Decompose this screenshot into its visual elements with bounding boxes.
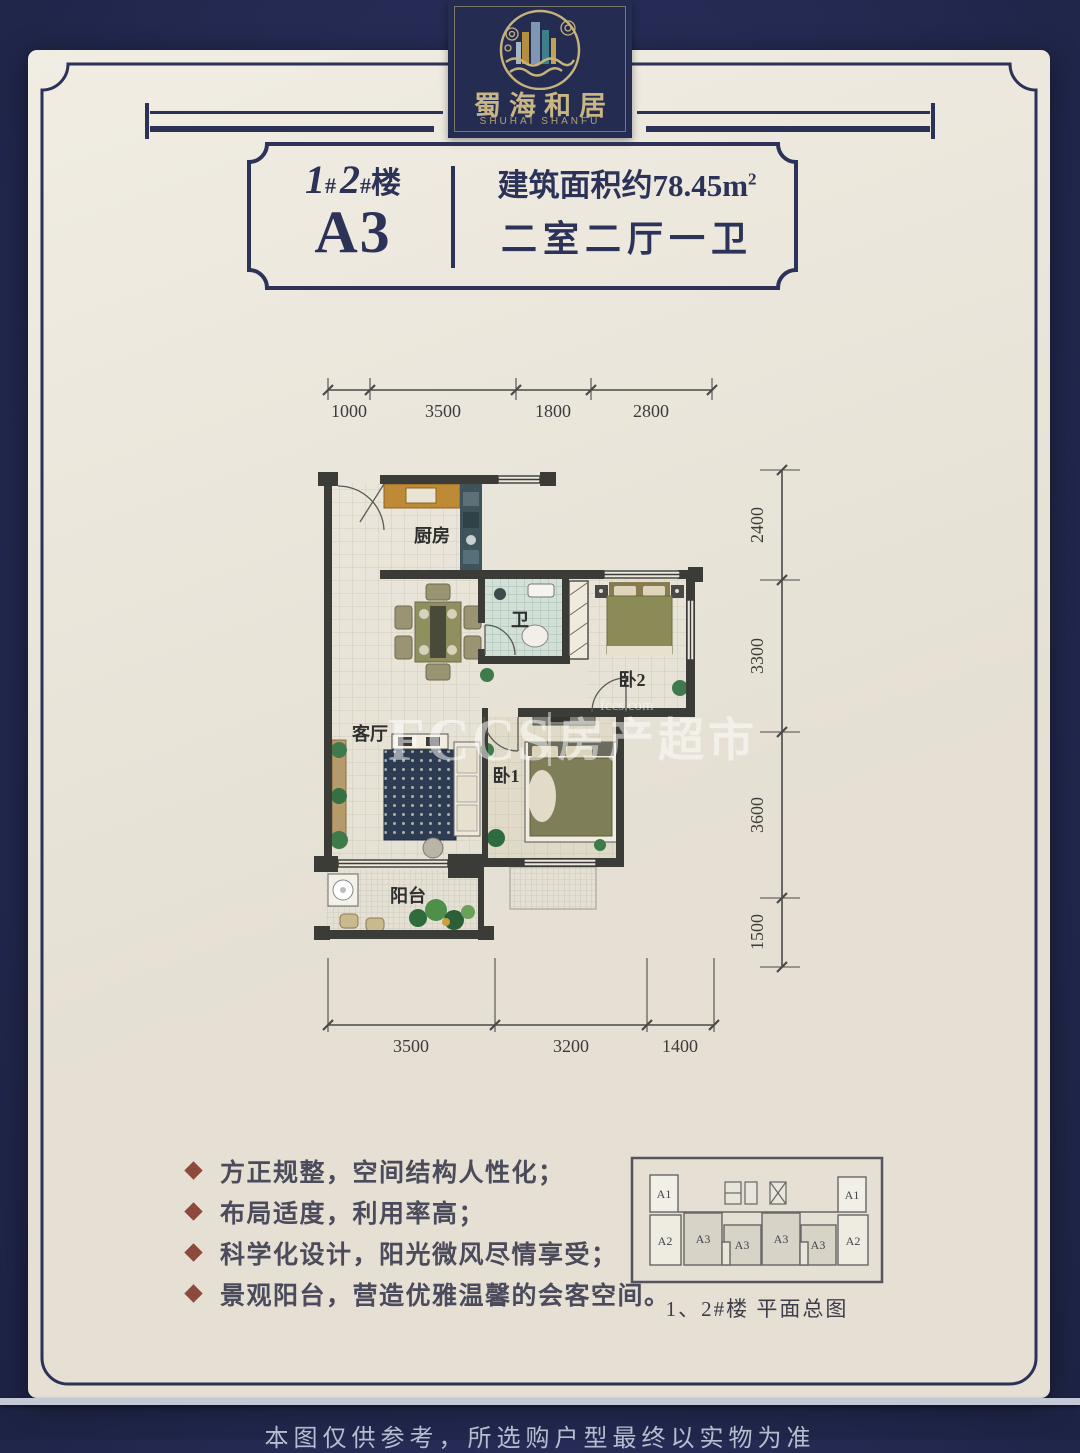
dim-bottom-3200: 3200 (553, 1036, 589, 1056)
dimension-labels-top: 1000 3500 1800 2800 (331, 401, 669, 421)
logo-english-name: SHUHAI SHANFU (448, 116, 632, 127)
area-superscript: 2 (748, 170, 757, 189)
unit-a3-1: A3 (696, 1232, 711, 1246)
floor-plan-poster-photo: { "brand": { "logo_cn": "蜀海和居", "logo_en… (0, 0, 1080, 1440)
area-value: 78.45 (652, 168, 722, 203)
key-plan-core (678, 1182, 838, 1212)
title-divider (451, 166, 455, 268)
unit-a3-4: A3 (811, 1238, 826, 1252)
dim-bottom-3500: 3500 (393, 1036, 429, 1056)
watermark-domain: fccs.com (600, 698, 654, 714)
dim-right-3300: 3300 (747, 638, 767, 674)
building-suffix: 楼 (371, 167, 401, 200)
left-flank-line-thin (150, 111, 443, 114)
right-flank-endcap (931, 103, 935, 139)
feature-text: 景观阳台，营造优雅温馨的会客空间。 (220, 1276, 671, 1312)
dim-top-2800: 2800 (633, 401, 669, 421)
dim-right-1500: 1500 (747, 914, 767, 950)
dim-top-3500: 3500 (425, 401, 461, 421)
diamond-bullet-icon (184, 1243, 202, 1261)
building-num-2: 2 (340, 157, 360, 202)
unit-a2-right: A2 (846, 1234, 861, 1248)
dim-right-3600: 3600 (747, 797, 767, 833)
room-count-label: 二室二厅一卫 (462, 210, 792, 262)
poster-bottom-edge (0, 1398, 1080, 1405)
building-num-1: 1 (305, 157, 325, 202)
unit-a3-2: A3 (735, 1238, 750, 1252)
living-room-label: 客厅 (352, 723, 388, 744)
disclaimer-text: 本图仅供参考，所选购户型最终以实物为准 (0, 1418, 1080, 1453)
feature-text: 科学化设计，阳光微风尽情享受； (220, 1235, 618, 1271)
key-plan-caption: 1、2#楼 平面总图 (666, 1297, 849, 1321)
diamond-bullet-icon (184, 1284, 202, 1302)
bedroom2-label: 卧2 (619, 670, 646, 690)
building-key-plan: A1 A1 A2 A3 A3 A3 A3 A2 1、2#楼 平面总图 (625, 1150, 895, 1330)
diamond-bullet-icon (184, 1202, 202, 1220)
dimension-chain-top (323, 378, 717, 400)
unit-a1-right: A1 (845, 1188, 860, 1202)
diamond-bullet-icon (184, 1161, 202, 1179)
unit-a2-left: A2 (658, 1234, 673, 1248)
logo-box: 蜀海和居 SHUHAI SHANFU (448, 0, 632, 138)
unit-type-label: A3 (253, 198, 453, 267)
key-plan-units (650, 1175, 868, 1265)
balcony-label: 阳台 (390, 885, 426, 906)
area-prefix: 建筑面积约 (497, 168, 652, 203)
building-hash-2: # (360, 173, 371, 198)
dim-bottom-1400: 1400 (662, 1036, 698, 1056)
left-flank-endcap (145, 103, 149, 139)
kitchen-label: 厨房 (414, 525, 450, 546)
right-flank-line-thick (646, 126, 930, 132)
left-flank-line-thick (150, 126, 434, 132)
floor-area-label: 建筑面积约78.45m2 (462, 160, 792, 205)
dim-right-2400: 2400 (747, 507, 767, 543)
building-hash-1: # (325, 173, 336, 198)
right-flank-line-thin (637, 111, 930, 114)
dim-top-1000: 1000 (331, 401, 367, 421)
logo-emblem-icon (448, 0, 632, 90)
dimension-labels-bottom: 3500 3200 1400 (393, 1036, 698, 1056)
watermark-brand: FCCS (388, 707, 553, 773)
building-number-label: 1# 2#楼 (253, 156, 453, 203)
watermark-brand-cn: 房产超市 (558, 715, 758, 766)
bathroom-label: 卫 (511, 610, 529, 630)
feature-text: 方正规整，空间结构人性化； (220, 1153, 565, 1189)
area-unit: m (722, 168, 748, 203)
feature-text: 布局适度，利用率高； (220, 1194, 485, 1230)
floor-plan: 1000 3500 1800 2800 2400 3300 3600 1500 (300, 370, 820, 1080)
unit-a3-3: A3 (774, 1232, 789, 1246)
dimension-chain-bottom (323, 958, 719, 1032)
unit-a1-left: A1 (657, 1187, 672, 1201)
dim-top-1800: 1800 (535, 401, 571, 421)
